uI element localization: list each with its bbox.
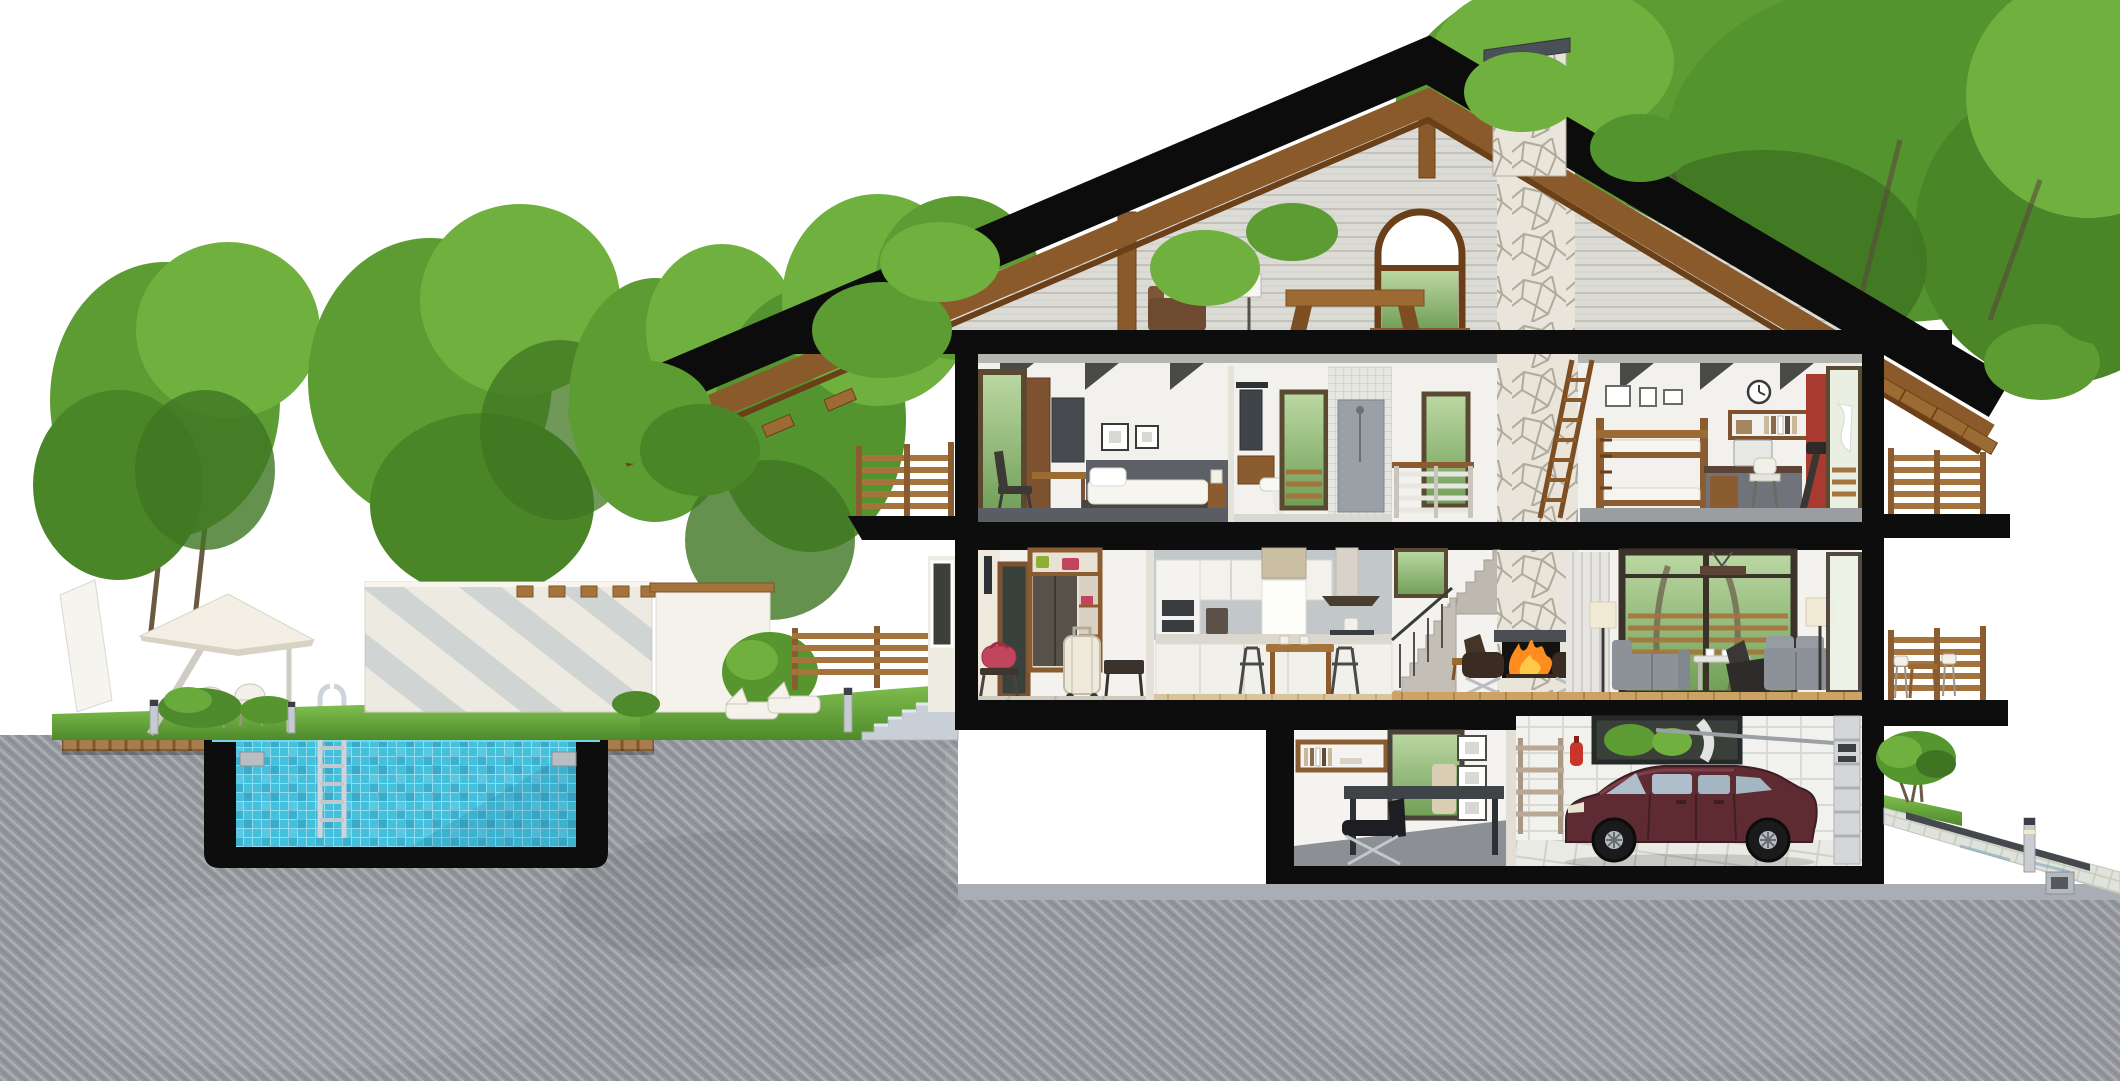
drain-channel xyxy=(1906,812,2090,871)
kids-frame-2 xyxy=(1640,388,1656,406)
kitchen-counter xyxy=(1156,634,1392,644)
earth-retaining-inset xyxy=(945,748,1250,872)
ground-floor xyxy=(928,540,1884,712)
kids-balcony-door xyxy=(1828,368,1860,518)
kids-frame-3 xyxy=(1664,390,1682,404)
mirror-light-bar xyxy=(1236,382,1268,388)
driveway-bollard xyxy=(2024,818,2035,872)
pink-bag xyxy=(1062,558,1079,570)
bathroom-window xyxy=(1282,392,1326,508)
coffee-machine xyxy=(1206,608,1228,634)
porch-wall-lamp xyxy=(984,556,992,594)
green-bag xyxy=(1036,556,1049,568)
bedroom-mirror xyxy=(1052,398,1084,462)
terrace-right xyxy=(1884,626,2008,726)
drain-pipe xyxy=(2046,872,2074,894)
balcony-right-upper xyxy=(1884,448,2010,538)
garage xyxy=(1516,716,1864,870)
stair-window-ground xyxy=(1396,550,1446,596)
cooktop xyxy=(1330,630,1374,635)
scene-canvas xyxy=(0,0,2120,1081)
roller-blind xyxy=(1262,548,1306,578)
sofa-right xyxy=(1764,636,1828,690)
upper-floor-slab xyxy=(955,522,1884,550)
kitchen-window xyxy=(1262,580,1306,636)
kitchen xyxy=(1154,548,1392,712)
pool-anchor-left xyxy=(240,752,264,766)
suitcase xyxy=(1064,628,1100,701)
striped-garden-wall xyxy=(365,582,655,712)
wall-clock xyxy=(1748,381,1770,403)
small-tree xyxy=(1876,731,1956,802)
upper-floor xyxy=(955,340,1884,524)
attic-arched-window xyxy=(1370,212,1470,336)
entry-bench xyxy=(1104,660,1144,674)
bathroom-mirror xyxy=(1240,390,1262,450)
house-cross-section-illustration xyxy=(0,0,2120,1081)
terrace-door xyxy=(1828,554,1860,692)
left-garden xyxy=(52,580,958,740)
foundation-strip xyxy=(958,884,2120,900)
stair-hall-window-upper xyxy=(1424,394,1468,506)
right-yard xyxy=(1876,731,2120,894)
facade-sidelight xyxy=(932,562,952,646)
bathroom-shower xyxy=(1338,400,1384,512)
garage-door xyxy=(1834,716,1860,864)
car-side-window xyxy=(1652,774,1692,794)
kids-frame-1 xyxy=(1606,386,1630,406)
built-in-oven xyxy=(1162,600,1194,616)
pool-anchor-right xyxy=(552,752,576,766)
